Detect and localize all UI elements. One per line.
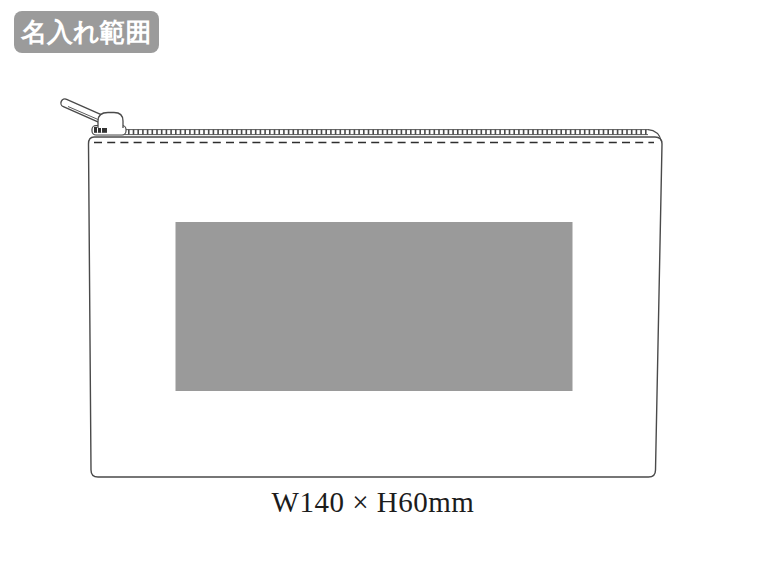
print-area	[176, 222, 573, 391]
pouch-illustration	[0, 0, 760, 570]
zipper-slider-hood	[98, 113, 123, 129]
print-area-dimension-label: W140 × H60mm	[90, 486, 656, 519]
product-print-area-figure: 名入れ範囲 W140 × H60mm	[0, 0, 760, 570]
